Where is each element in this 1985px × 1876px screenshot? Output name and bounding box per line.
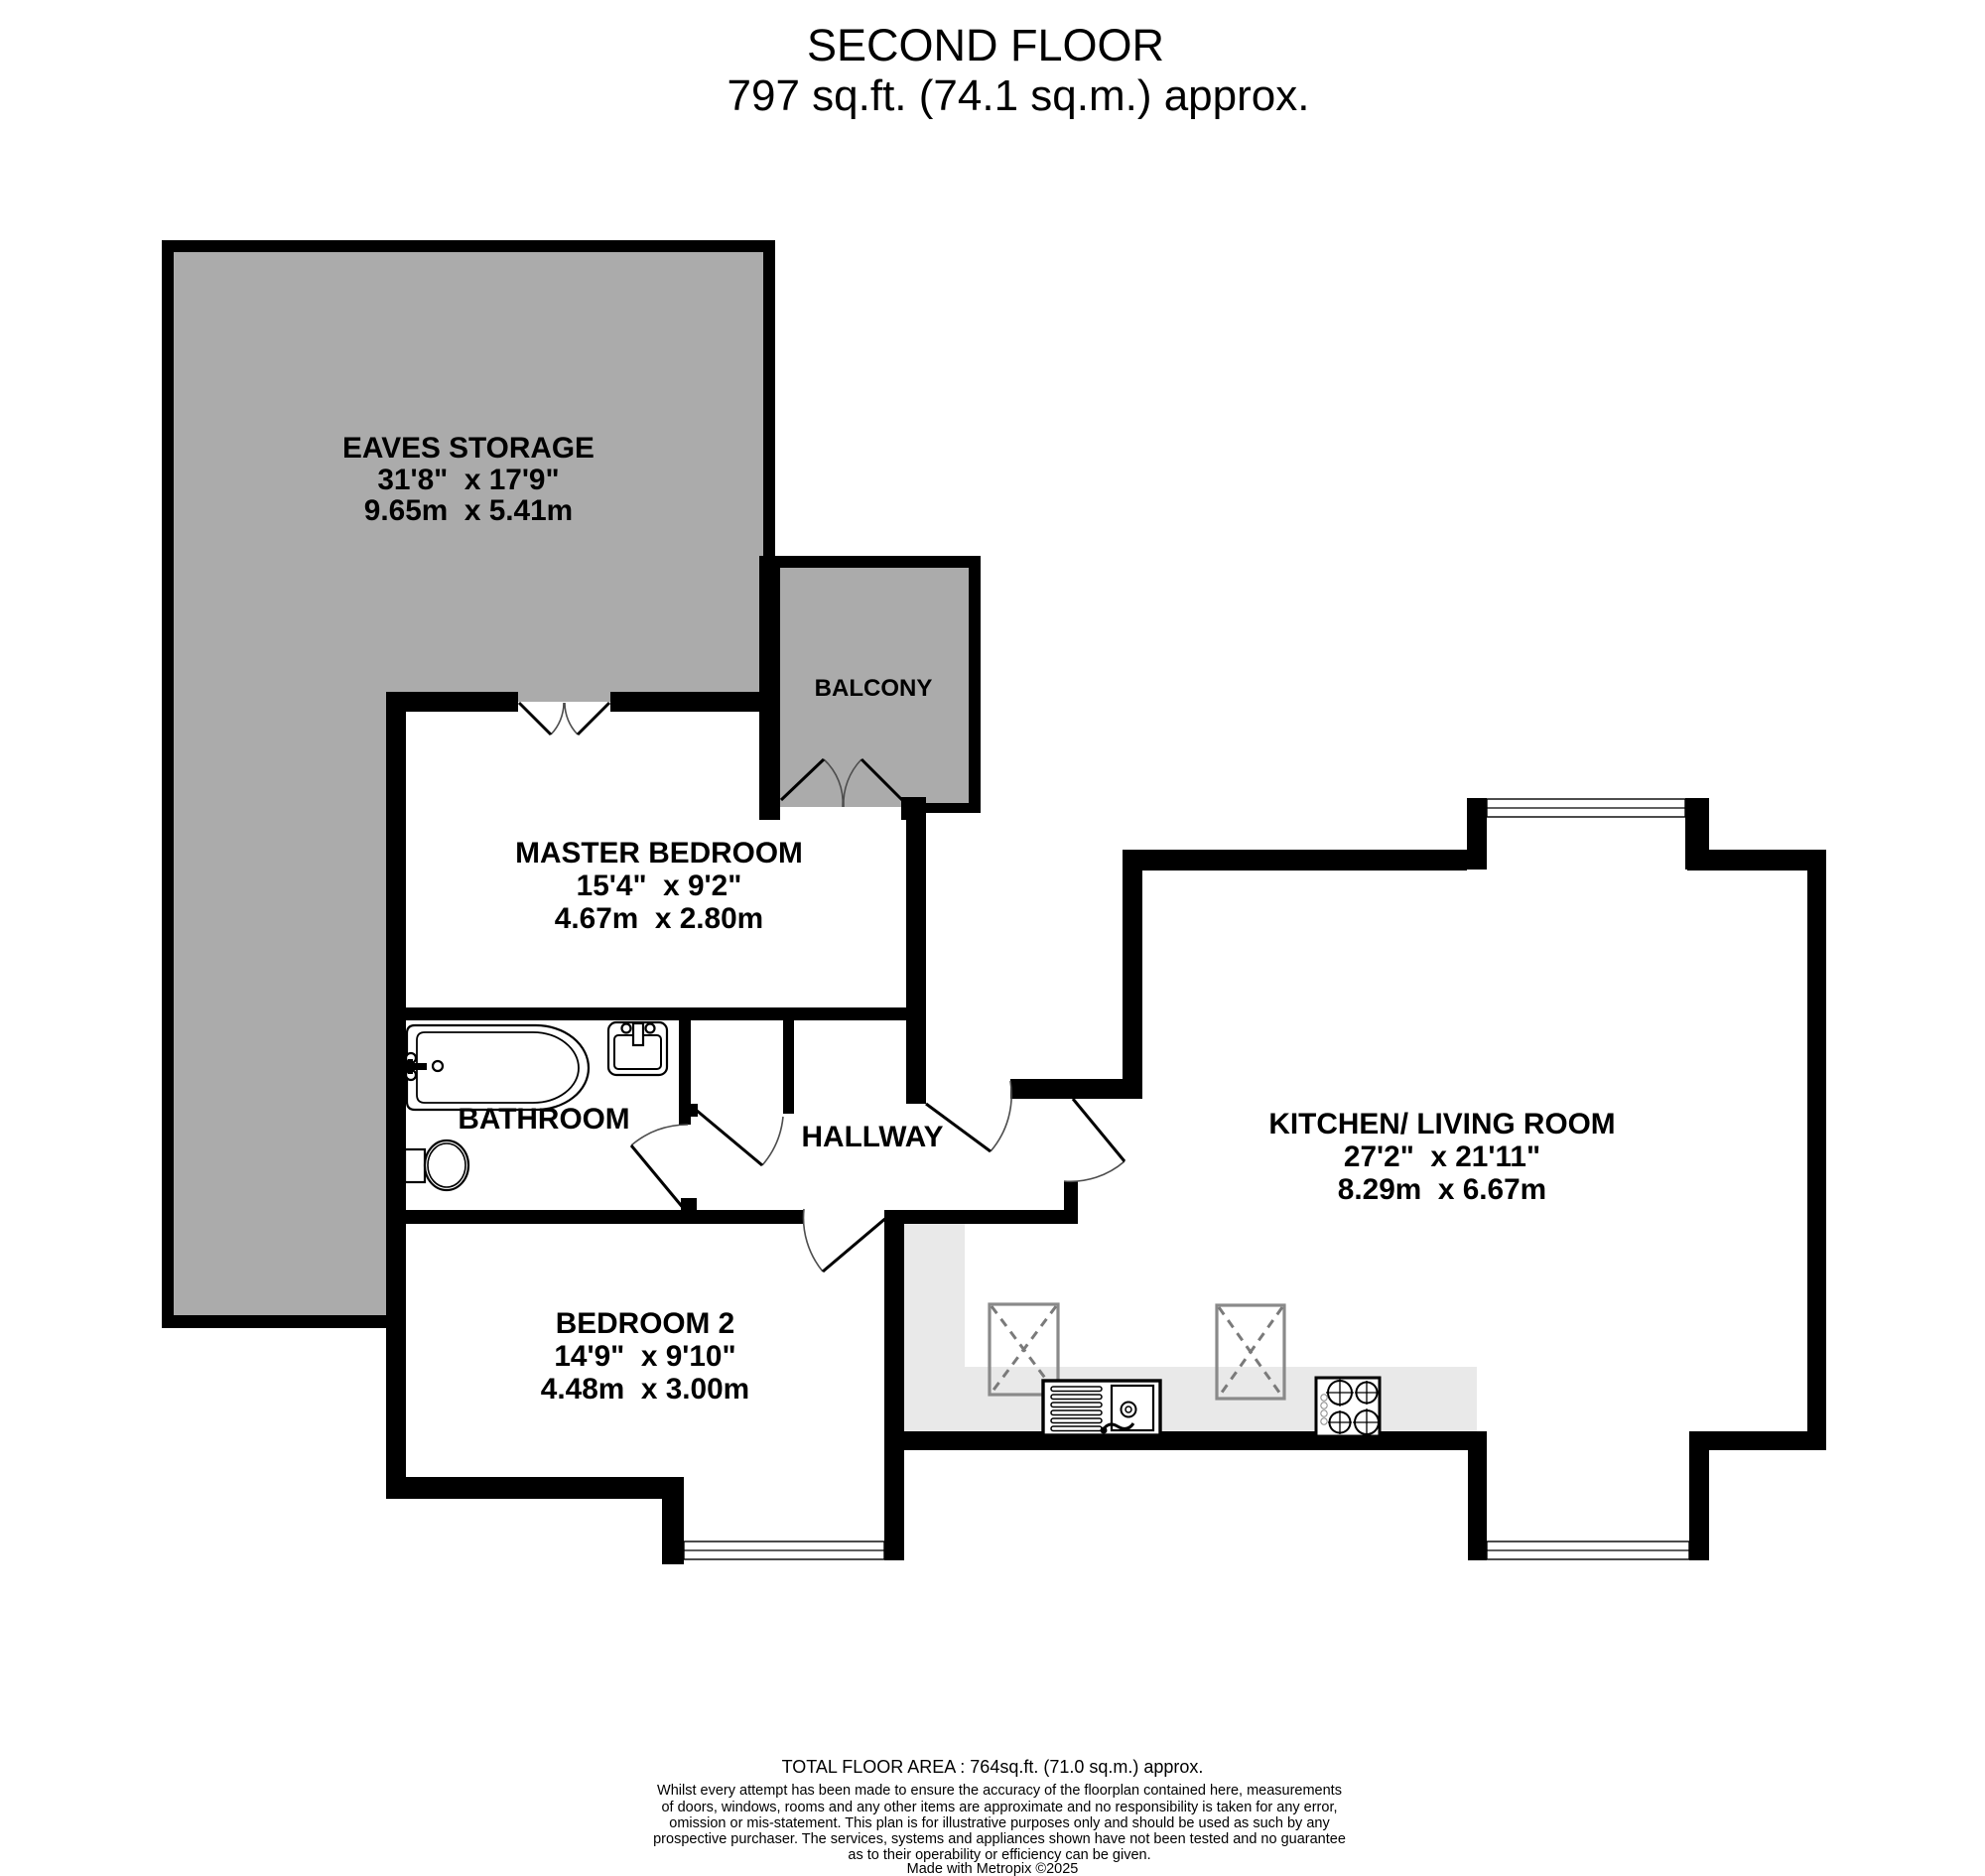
svg-text:KITCHEN/ LIVING ROOM: KITCHEN/ LIVING ROOM [1268, 1108, 1615, 1140]
svg-text:Made with Metropix ©2025: Made with Metropix ©2025 [907, 1861, 1079, 1876]
svg-text:HALLWAY: HALLWAY [802, 1121, 944, 1153]
svg-text:14'9" x 9'10": 14'9" x 9'10" [554, 1340, 735, 1373]
svg-text:4.67m x 2.80m: 4.67m x 2.80m [555, 902, 763, 935]
svg-text:15'4" x 9'2": 15'4" x 9'2" [577, 870, 742, 902]
svg-text:BATHROOM: BATHROOM [458, 1103, 629, 1136]
svg-text:prospective purchaser. The ser: prospective purchaser. The services, sys… [653, 1831, 1346, 1847]
svg-text:BALCONY: BALCONY [815, 675, 933, 702]
svg-text:of doors, windows, rooms and a: of doors, windows, rooms and any other i… [661, 1800, 1337, 1815]
svg-text:4.48m x 3.00m: 4.48m x 3.00m [541, 1373, 749, 1406]
svg-text:8.29m x 6.67m: 8.29m x 6.67m [1338, 1173, 1546, 1206]
svg-text:SECOND FLOOR: SECOND FLOOR [807, 20, 1164, 70]
svg-text:MASTER BEDROOM: MASTER BEDROOM [515, 837, 803, 870]
svg-text:9.65m x 5.41m: 9.65m x 5.41m [364, 494, 573, 527]
svg-text:omission or mis-statement. Thi: omission or mis-statement. This plan is … [669, 1815, 1330, 1831]
svg-text:EAVES STORAGE: EAVES STORAGE [342, 432, 595, 465]
svg-text:797 sq.ft. (74.1 sq.m.) approx: 797 sq.ft. (74.1 sq.m.) approx. [728, 71, 1310, 120]
svg-text:BEDROOM 2: BEDROOM 2 [556, 1307, 734, 1340]
svg-text:Whilst every attempt has been: Whilst every attempt has been made to en… [657, 1783, 1342, 1799]
svg-text:27'2" x 21'11": 27'2" x 21'11" [1344, 1140, 1540, 1173]
svg-text:31'8" x 17'9": 31'8" x 17'9" [377, 464, 559, 496]
svg-text:TOTAL FLOOR AREA : 764sq.ft. (: TOTAL FLOOR AREA : 764sq.ft. (71.0 sq.m.… [782, 1757, 1204, 1777]
